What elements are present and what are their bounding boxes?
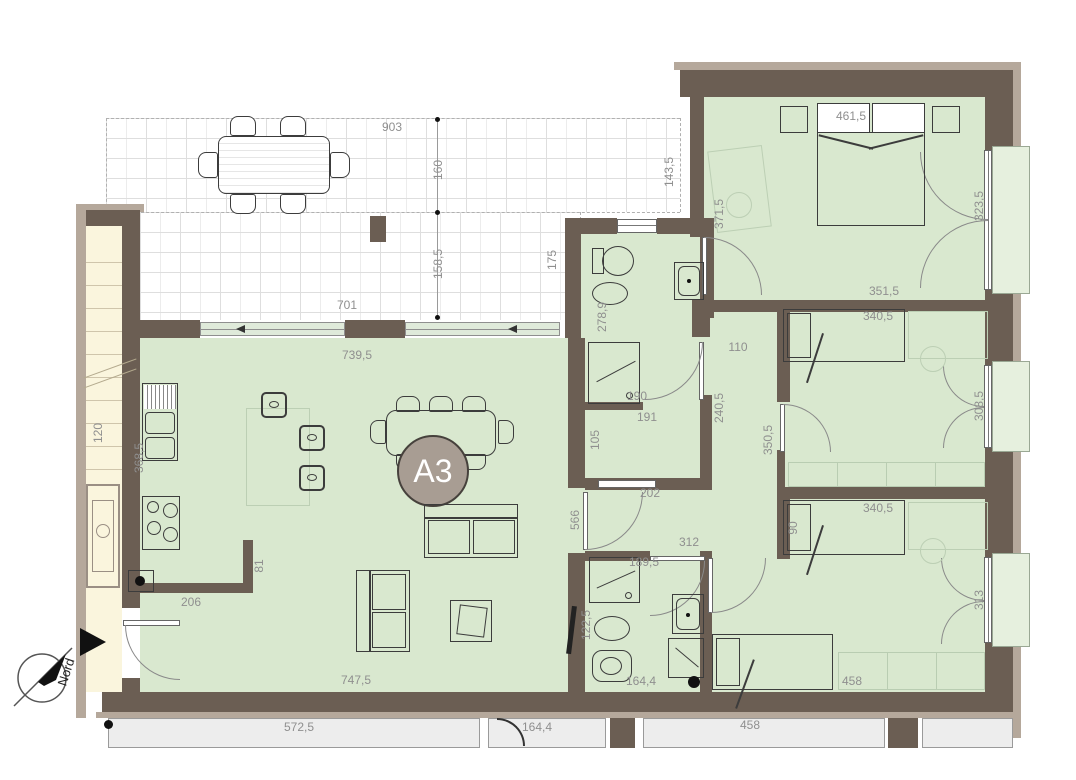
- desk-chair: [920, 538, 946, 564]
- desk: [908, 502, 988, 550]
- dim-hall-width: 110: [728, 341, 747, 353]
- desk: [908, 311, 988, 359]
- terrace-pillar: [370, 216, 386, 242]
- kitchen-sink-basin: [145, 412, 175, 434]
- dim-bath1-depth: 278,9: [596, 302, 608, 332]
- wall-segment: [690, 97, 704, 237]
- dim-node: [435, 210, 440, 215]
- dining-chair: [498, 420, 514, 444]
- dim-below-mid: 164,4: [522, 721, 552, 733]
- boiler: [688, 676, 700, 688]
- dim-bedroom2-window: 308,5: [973, 391, 985, 421]
- dim-terrace-upper-depth: 160: [432, 160, 444, 180]
- wall-segment: [102, 692, 1013, 712]
- burner: [147, 521, 161, 535]
- dim-below-left: 572,5: [284, 721, 314, 733]
- dim-living-height: 566: [569, 510, 581, 530]
- dim-line: [437, 120, 438, 318]
- terrace-edge-left: [106, 118, 107, 212]
- terrace-window-sill: [405, 322, 560, 336]
- dim-master-window: 323,5: [973, 191, 985, 221]
- dim-living-bottom: 747,5: [341, 674, 371, 686]
- dim-hall2-width: 312: [679, 536, 699, 548]
- terrace-chair: [198, 152, 218, 178]
- dim-terrace-top: 903: [382, 121, 402, 133]
- wall-segment: [122, 678, 140, 692]
- dim-kitchen-front: 206: [181, 596, 201, 608]
- bathroom-window: [617, 219, 657, 233]
- slide-arrow-icon: [508, 325, 517, 333]
- dim-bath2-bottom: 164,4: [626, 675, 656, 687]
- kitchen-island: [246, 408, 310, 506]
- desk-chair: [920, 346, 946, 372]
- dim-bedroom3-window: 313: [973, 590, 985, 610]
- lower-unit-room: [643, 718, 885, 748]
- kitchen-sink-basin: [145, 437, 175, 459]
- dim-bath2-depth: 122,5: [580, 610, 592, 640]
- kitchen-drainer: [144, 385, 176, 409]
- wall-segment: [610, 718, 635, 748]
- wall-segment: [777, 450, 785, 487]
- dim-closet-width: 191: [637, 411, 657, 423]
- wardrobe: [788, 462, 985, 487]
- north-compass-icon: [6, 630, 86, 722]
- basin-drain: [686, 613, 690, 617]
- window-sill-exterior: [992, 361, 1030, 452]
- entrance-door-arc: [125, 625, 180, 680]
- bed-headboard: [872, 103, 925, 133]
- pouf-button: [307, 474, 317, 481]
- elevator-motor: [96, 524, 110, 538]
- dim-bath1-shower: 190: [627, 390, 647, 402]
- dining-chair: [429, 396, 453, 412]
- dim-kitchen-counter: 368,5: [133, 443, 145, 473]
- terrace-edge-right: [680, 118, 681, 212]
- terrace-edge-mid: [106, 212, 680, 213]
- building-wall-right: [1013, 639, 1021, 738]
- side-table-inner: [456, 604, 487, 637]
- staircase: [86, 240, 122, 480]
- dim-bedroom2-bed: 340,5: [863, 310, 893, 322]
- dim-bedroom2-width: 351,5: [869, 285, 899, 297]
- wall-segment: [985, 643, 1013, 692]
- building-wall-right: [1013, 444, 1021, 561]
- sofa-cushion: [473, 520, 515, 554]
- building-wall-right: [1013, 62, 1021, 158]
- dim-bedroom3-bed-depth: 90: [787, 521, 799, 534]
- building-wall-right: [1013, 286, 1021, 369]
- dim-closet-depth: 105: [589, 430, 601, 450]
- building-wall-top: [674, 62, 1021, 70]
- floor-plan: A3: [0, 0, 1076, 780]
- wall-segment: [565, 218, 581, 338]
- sofa-cushion: [372, 574, 406, 610]
- dim-below-right: 458: [740, 719, 760, 731]
- terrace-window-sill: [200, 322, 345, 336]
- wall-segment: [345, 320, 405, 338]
- terrace-table: [218, 136, 330, 194]
- desk-chair: [726, 192, 752, 218]
- toilet-bowl: [600, 657, 622, 675]
- pouf-button: [269, 401, 279, 408]
- lower-unit-room: [922, 718, 1013, 748]
- burner: [163, 503, 178, 518]
- terrace-edge-top: [106, 118, 680, 119]
- nightstand: [932, 106, 960, 133]
- wall-segment: [140, 583, 253, 593]
- bed-pillow: [787, 313, 811, 358]
- dining-chair: [370, 420, 386, 444]
- dim-node: [435, 315, 440, 320]
- lower-unit-fixture: [104, 720, 113, 729]
- dim-terrace-lower-depth: 158,5: [432, 249, 444, 279]
- dim-terrace-right-depth: 175: [546, 250, 558, 270]
- pouf-button: [307, 434, 317, 441]
- sofa-back-line: [424, 517, 518, 519]
- sofa-back-line: [369, 570, 371, 652]
- wall-segment: [700, 395, 712, 488]
- wall-segment: [680, 70, 1013, 97]
- bed-pillow: [716, 638, 740, 686]
- wall-segment: [985, 448, 1013, 557]
- sofa-cushion: [372, 612, 406, 648]
- unit-badge: A3: [397, 435, 469, 507]
- wall-segment: [140, 320, 200, 338]
- dim-bath2-shower: 189,5: [629, 556, 659, 568]
- dim-terrace-right-edge: 143,5: [663, 157, 675, 187]
- shower-drain: [625, 592, 632, 599]
- terrace-chair: [230, 194, 256, 214]
- dim-terrace-bottom: 701: [337, 299, 357, 311]
- dim-kitchen-return: 81: [253, 559, 265, 572]
- terrace-lower: [140, 212, 580, 320]
- slide-arrow-icon: [236, 325, 245, 333]
- nightstand: [780, 106, 808, 133]
- burner: [147, 501, 159, 513]
- dim-master-depth: 371,5: [713, 199, 725, 229]
- terrace-chair: [330, 152, 350, 178]
- floor-drain: [135, 576, 145, 586]
- dim-hall-depth: 240,5: [713, 393, 725, 423]
- burner: [163, 527, 178, 542]
- dim-bedroom3-bed: 340,5: [863, 502, 893, 514]
- dim-living-top: 739,5: [342, 349, 372, 361]
- dining-chair: [462, 396, 486, 412]
- toilet-bowl: [602, 246, 634, 276]
- dim-master-width: 461,5: [833, 110, 869, 122]
- unit-label: A3: [413, 453, 452, 490]
- basin-drain: [687, 279, 691, 283]
- dining-chair: [396, 396, 420, 412]
- wall-segment: [122, 210, 140, 608]
- dim-bedroom3-bottom: 458: [842, 675, 862, 687]
- dim-closet-passage: 202: [640, 487, 660, 499]
- wall-segment: [888, 718, 918, 748]
- dim-stair-width: 120: [92, 423, 104, 443]
- wall-segment: [985, 70, 1013, 150]
- bidet: [594, 616, 630, 641]
- terrace-chair: [280, 116, 306, 136]
- terrace-chair: [230, 116, 256, 136]
- wall-segment: [568, 338, 585, 488]
- dim-node: [435, 117, 440, 122]
- window-sill-exterior: [992, 146, 1030, 294]
- wall-segment: [777, 487, 990, 499]
- sofa-cushion: [428, 520, 470, 554]
- dim-corridor-depth: 350,5: [762, 425, 774, 455]
- terrace-chair: [280, 194, 306, 214]
- window-sill-exterior: [992, 553, 1030, 647]
